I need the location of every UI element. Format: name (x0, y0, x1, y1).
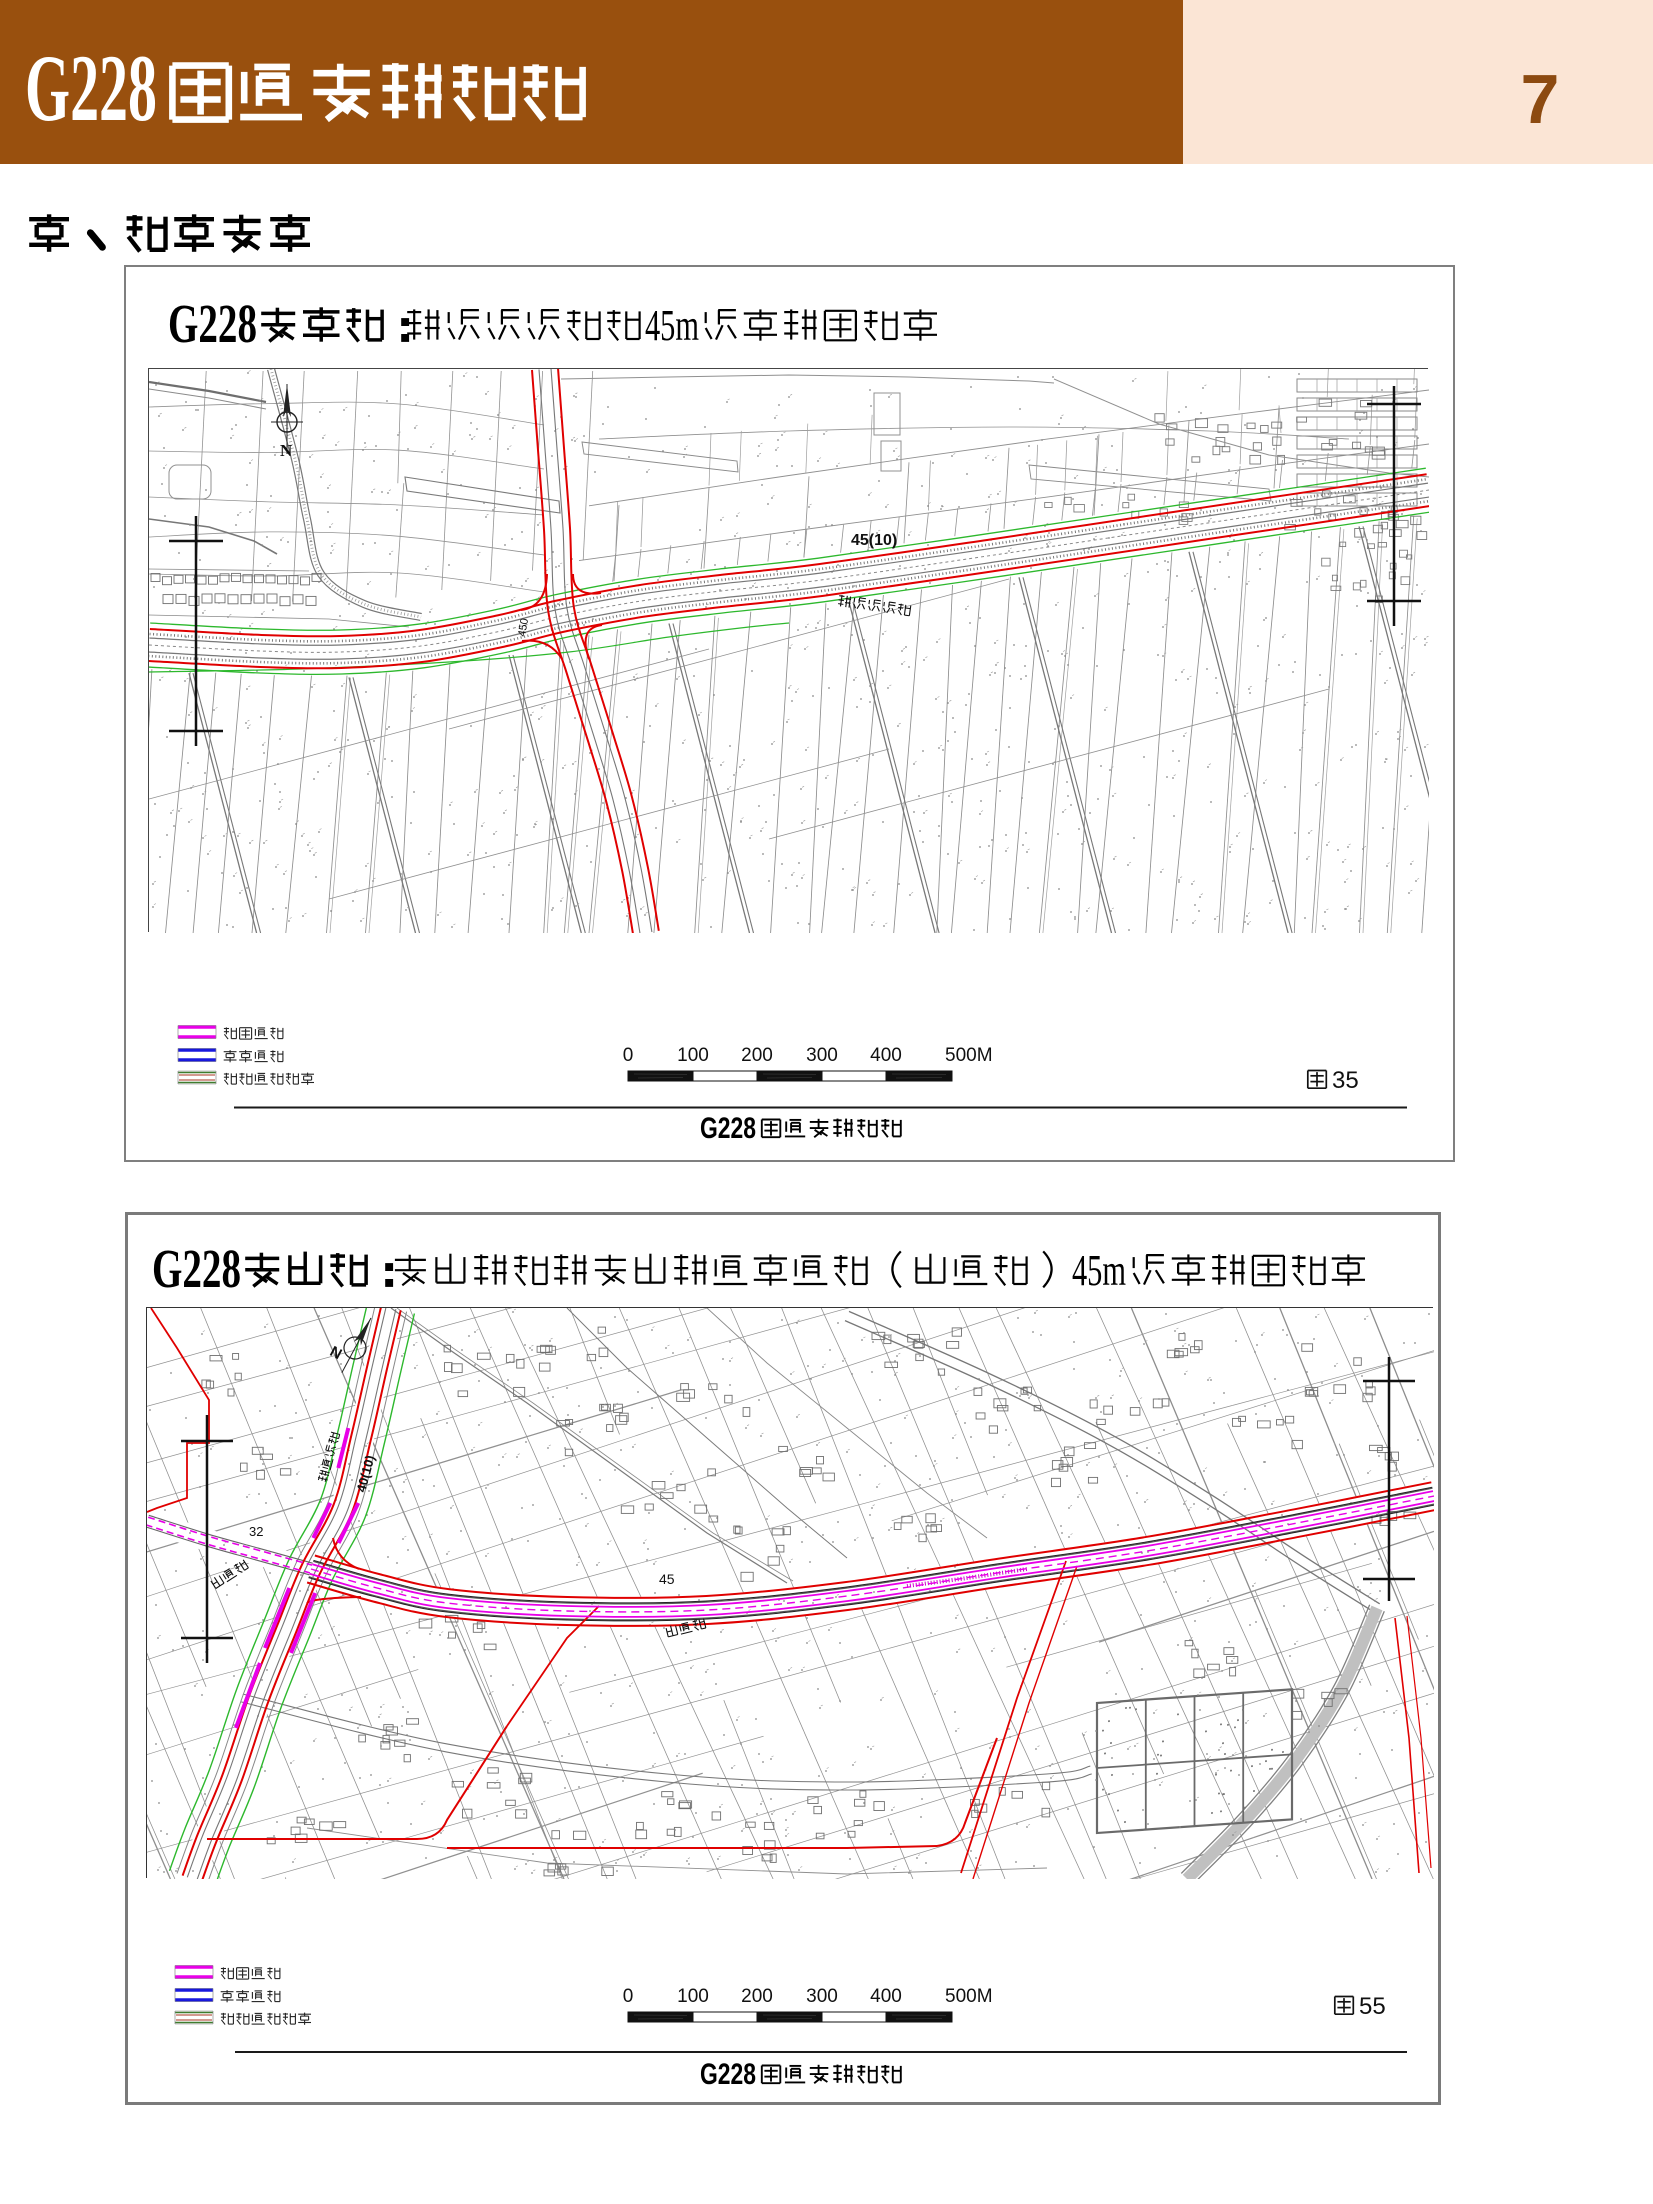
svg-text:G228: G228 (168, 293, 257, 354)
svg-text:32: 32 (249, 1524, 263, 1539)
svg-text:G228: G228 (700, 1112, 756, 1145)
svg-text:500M: 500M (945, 1045, 993, 1066)
svg-text:N: N (280, 441, 293, 460)
svg-text:300: 300 (806, 1986, 838, 2007)
svg-text:0: 0 (623, 1045, 634, 1066)
svg-text:35: 35 (1332, 1067, 1359, 1094)
svg-text:100: 100 (677, 1045, 709, 1066)
svg-text:500M: 500M (945, 1986, 993, 2007)
svg-text:400: 400 (870, 1986, 902, 2007)
svg-text:400: 400 (870, 1045, 902, 1066)
svg-text:45: 45 (659, 1571, 675, 1587)
svg-text:55: 55 (1359, 1993, 1386, 2020)
svg-text:0: 0 (623, 1986, 634, 2007)
svg-text:200: 200 (741, 1045, 773, 1066)
svg-text:G228: G228 (700, 2058, 756, 2091)
svg-text:45m: 45m (1072, 1246, 1126, 1295)
svg-text:200: 200 (741, 1986, 773, 2007)
svg-text:G228: G228 (152, 1238, 241, 1299)
svg-text:100: 100 (677, 1986, 709, 2007)
svg-text:300: 300 (806, 1045, 838, 1066)
svg-text:G228: G228 (25, 35, 157, 141)
svg-text:45m: 45m (645, 301, 699, 350)
svg-text:45(10): 45(10) (851, 532, 897, 549)
